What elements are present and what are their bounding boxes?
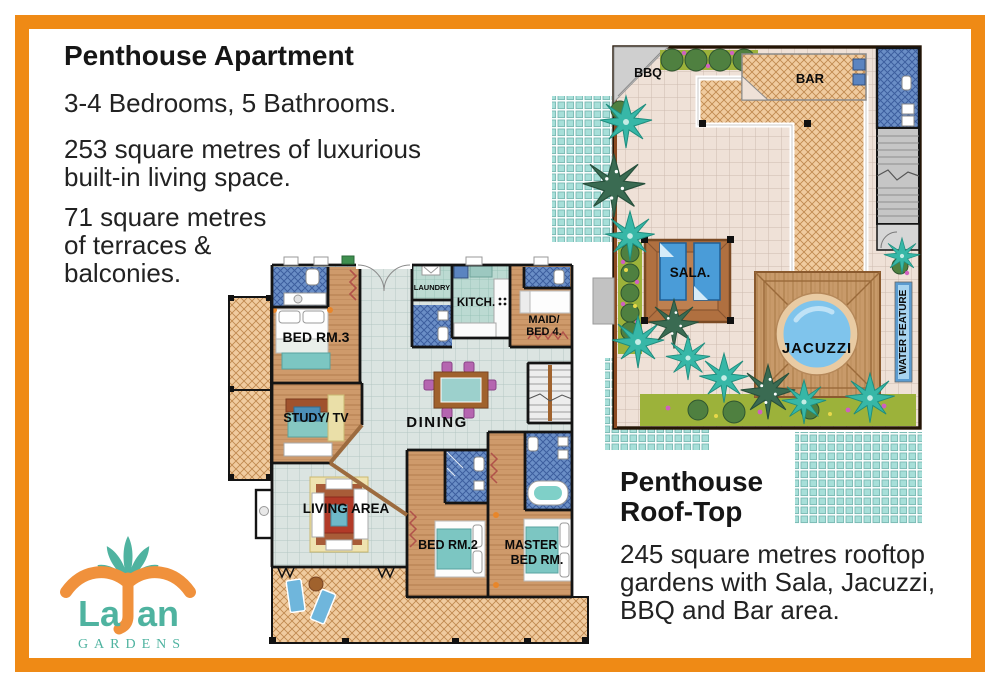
planter-icon bbox=[342, 256, 354, 264]
page-title: Penthouse Apartment bbox=[64, 42, 354, 70]
label-dining: DINING bbox=[406, 414, 468, 431]
roof-bathroom bbox=[877, 48, 919, 128]
logo-text-left: La bbox=[78, 593, 121, 634]
para2-line2: of terraces & bbox=[64, 232, 211, 258]
brochure-page: Penthouse Apartment 3-4 Bedrooms, 5 Bath… bbox=[0, 0, 1000, 687]
sink-icon bbox=[294, 295, 302, 303]
label-sala: SALA. bbox=[670, 265, 711, 280]
roof-stairs bbox=[877, 128, 919, 250]
hall-bathroom bbox=[412, 305, 452, 347]
fridge-icon bbox=[454, 266, 468, 278]
label-bed2: BED RM.2 bbox=[418, 538, 478, 552]
label-bbq: BBQ bbox=[634, 66, 662, 80]
sink-icon bbox=[902, 104, 914, 114]
para1-line2: built-in living space. bbox=[64, 164, 291, 190]
rug-icon bbox=[282, 353, 330, 369]
rooftop-plan: BBQ BAR SALA. JACUZZI WATER FEATURE bbox=[548, 20, 968, 532]
bedroom3-bathroom bbox=[272, 267, 328, 307]
trellis-bottom-right bbox=[795, 432, 922, 524]
roof-para-line3: BBQ and Bar area. bbox=[620, 597, 840, 623]
logo-tagline: GARDENS bbox=[78, 637, 186, 652]
label-bar: BAR bbox=[796, 71, 825, 86]
sink-icon bbox=[902, 116, 914, 126]
sink-icon bbox=[474, 481, 484, 490]
landing bbox=[593, 278, 614, 324]
wardrobe bbox=[328, 267, 360, 307]
toilet-icon bbox=[528, 437, 538, 451]
roof-para-line2: gardens with Sala, Jacuzzi, bbox=[620, 569, 935, 595]
label-master-1: MASTER bbox=[505, 538, 558, 552]
sofa-icon bbox=[284, 443, 332, 456]
label-study: STUDY/ TV bbox=[283, 411, 349, 425]
para2-line1: 71 square metres bbox=[64, 204, 266, 230]
trellis-left bbox=[552, 96, 612, 242]
layan-gardens-logo: La an GARDENS bbox=[50, 534, 206, 652]
label-living: LIVING AREA bbox=[303, 501, 390, 516]
label-laundry: LAUNDRY bbox=[414, 283, 450, 292]
para2-line3: balconies. bbox=[64, 260, 181, 286]
subtitle: 3-4 Bedrooms, 5 Bathrooms. bbox=[64, 90, 396, 116]
bedroom3 bbox=[271, 307, 360, 383]
label-water-feature: WATER FEATURE bbox=[898, 289, 909, 374]
toilet-icon bbox=[438, 327, 448, 341]
left-balcony bbox=[228, 295, 272, 480]
apartment-floorplan: BED RM.3 LAUNDRY KITCH. MAID/ BED 4. STU… bbox=[228, 253, 592, 660]
para1-line1: 253 square metres of luxurious bbox=[64, 136, 421, 162]
counter-icon bbox=[454, 323, 496, 338]
label-bed3: BED RM.3 bbox=[283, 329, 350, 345]
bedroom2 bbox=[407, 450, 493, 597]
toilet-icon bbox=[306, 269, 319, 285]
logo-text-right: an bbox=[137, 593, 179, 634]
label-master-2: BED RM. bbox=[511, 553, 564, 567]
roof-para-line1: 245 square metres rooftop bbox=[620, 541, 925, 567]
toilet-icon bbox=[902, 76, 911, 90]
sink-icon bbox=[438, 311, 448, 320]
jacuzzi-deck bbox=[755, 272, 880, 397]
balcony-nook bbox=[256, 490, 272, 538]
label-kitchen: KITCH. bbox=[457, 297, 495, 309]
terrace-table-icon bbox=[309, 577, 323, 591]
toilet-icon bbox=[474, 457, 484, 471]
label-jacuzzi: JACUZZI bbox=[782, 340, 852, 357]
